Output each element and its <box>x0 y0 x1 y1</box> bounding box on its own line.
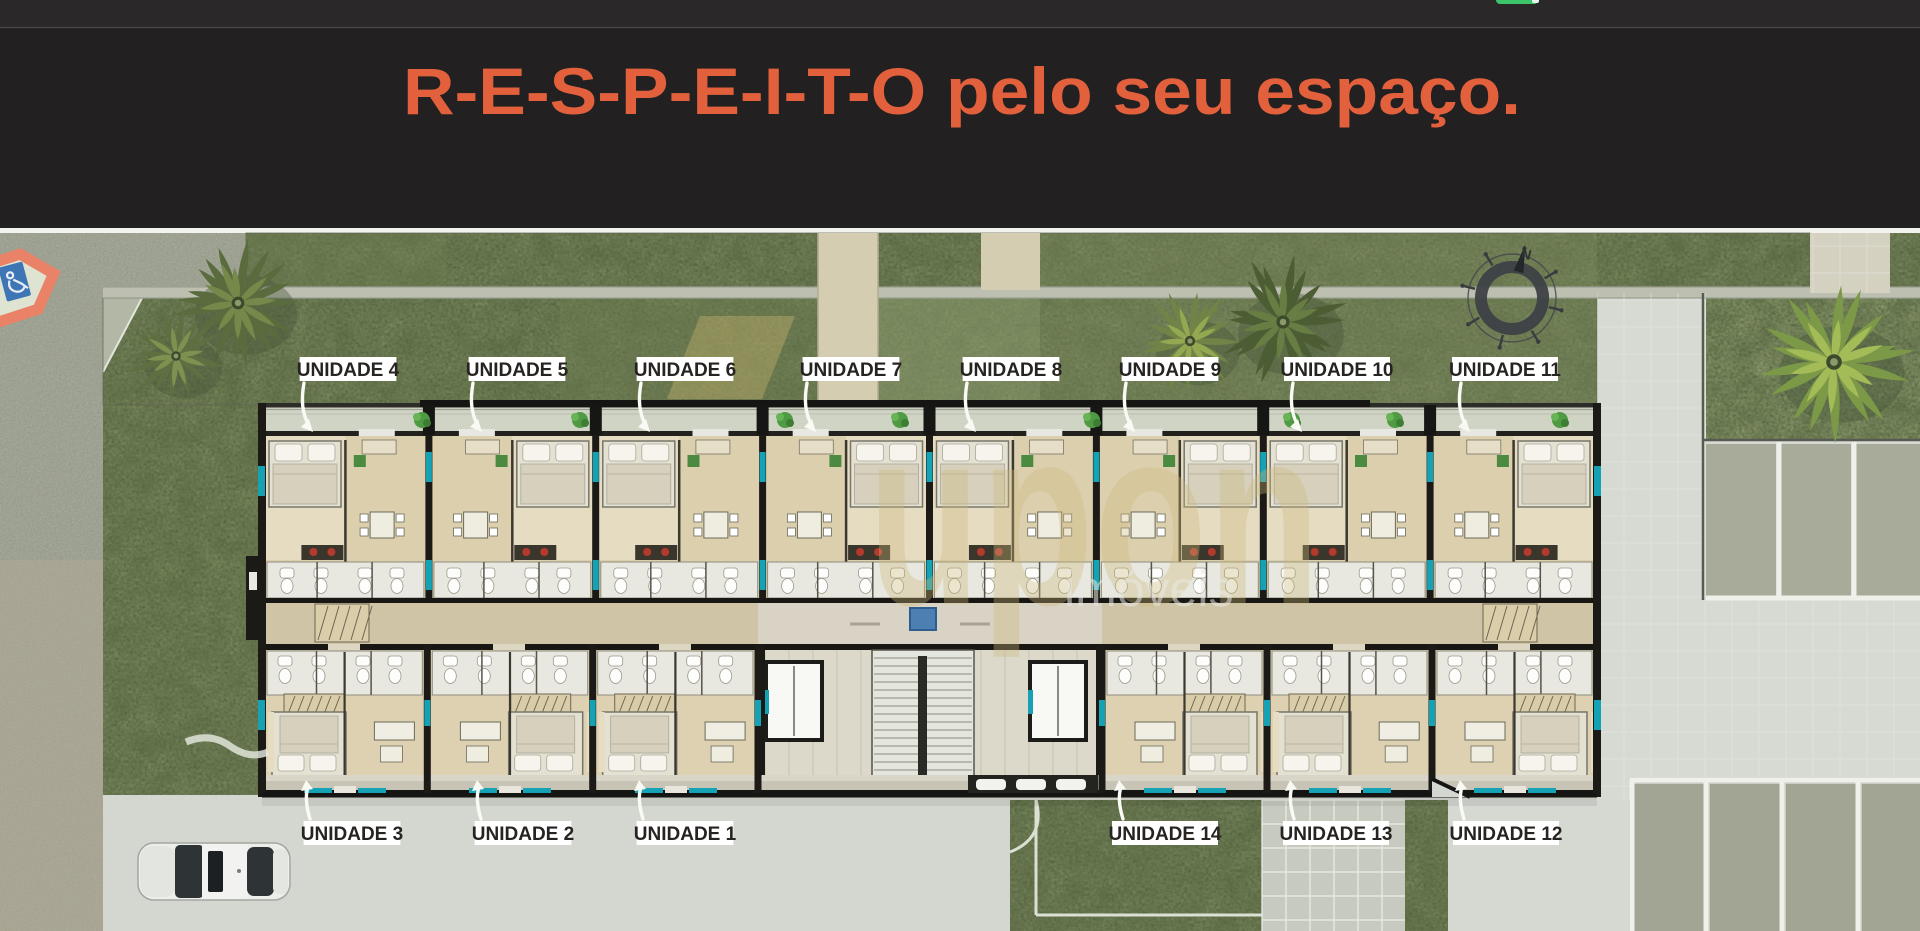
svg-text:UNIDADE 9: UNIDADE 9 <box>1119 360 1221 381</box>
svg-text:UNIDADE 11: UNIDADE 11 <box>1449 360 1561 381</box>
svg-text:UNIDADE 13: UNIDADE 13 <box>1280 824 1393 845</box>
svg-text:UNIDADE 1: UNIDADE 1 <box>634 824 737 845</box>
svg-text:UNIDADE 7: UNIDADE 7 <box>800 360 902 381</box>
svg-text:R-E-S-P-E-I-T-O pelo seu espaç: R-E-S-P-E-I-T-O pelo seu espaço. <box>403 54 1521 128</box>
svg-text:imóveis: imóveis <box>1064 561 1233 617</box>
svg-text:UNIDADE 14: UNIDADE 14 <box>1109 824 1222 845</box>
svg-text:UNIDADE 8: UNIDADE 8 <box>960 360 1062 381</box>
svg-text:UNIDADE 5: UNIDADE 5 <box>466 360 569 381</box>
svg-text:UNIDADE 6: UNIDADE 6 <box>634 360 736 381</box>
svg-text:UNIDADE 2: UNIDADE 2 <box>472 824 574 845</box>
svg-text:UNIDADE 10: UNIDADE 10 <box>1281 360 1394 381</box>
svg-text:UNIDADE 12: UNIDADE 12 <box>1450 824 1563 845</box>
svg-text:UNIDADE 3: UNIDADE 3 <box>301 824 403 845</box>
svg-text:UNIDADE 4: UNIDADE 4 <box>297 360 400 381</box>
